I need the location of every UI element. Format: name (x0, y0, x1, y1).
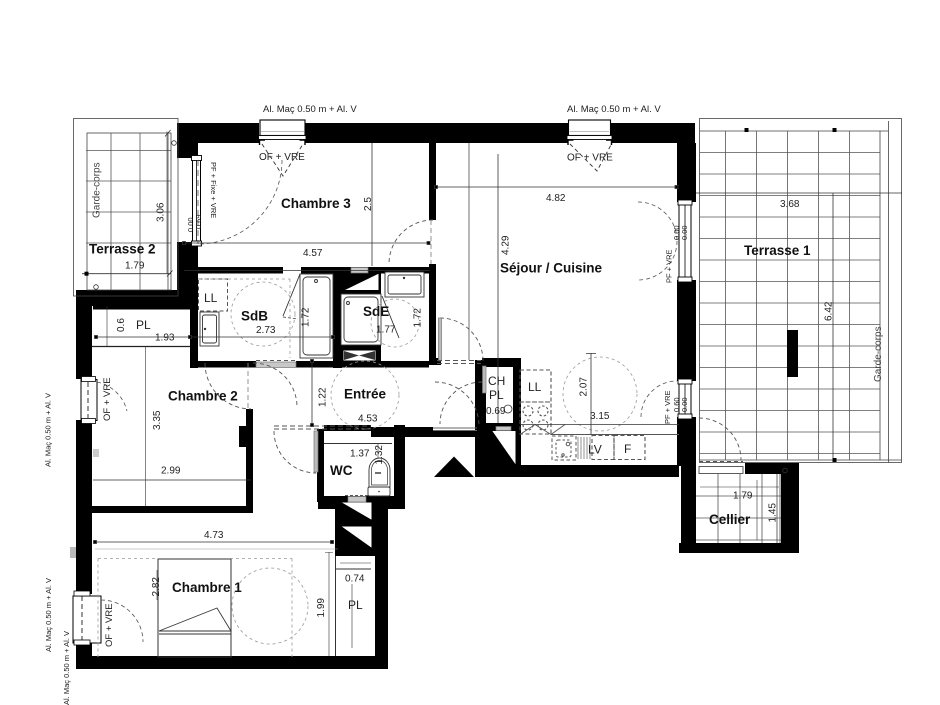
svg-text:Al. Maç 0.50 m + Al. V: Al. Maç 0.50 m + Al. V (567, 104, 661, 115)
svg-text:0.69: 0.69 (194, 214, 203, 229)
svg-text:OF + VRE: OF + VRE (567, 153, 613, 164)
svg-text:Garde-corps: Garde-corps (873, 326, 884, 382)
svg-text:LV: LV (588, 443, 602, 457)
svg-text:4.29: 4.29 (501, 235, 512, 255)
svg-text:Séjour / Cuisine: Séjour / Cuisine (500, 261, 603, 276)
svg-text:Garde-corps: Garde-corps (92, 162, 103, 218)
svg-text:Chambre 1: Chambre 1 (172, 580, 242, 595)
svg-text:Entrée: Entrée (344, 387, 387, 402)
svg-text:LL: LL (528, 380, 542, 394)
svg-text:1.79: 1.79 (733, 491, 753, 502)
svg-text:1.37: 1.37 (350, 449, 370, 460)
svg-text:1.45: 1.45 (768, 503, 779, 523)
svg-text:F: F (624, 442, 631, 456)
svg-text:0.00: 0.00 (680, 225, 689, 240)
svg-text:1.93: 1.93 (155, 333, 175, 344)
svg-text:2.73: 2.73 (256, 325, 276, 336)
svg-text:1.72: 1.72 (301, 307, 312, 327)
svg-text:4.82: 4.82 (546, 193, 566, 204)
svg-text:Al. Maç 0.50 m + Al. V: Al. Maç 0.50 m + Al. V (263, 104, 357, 115)
svg-text:Chambre 2: Chambre 2 (168, 389, 238, 404)
svg-text:PF + VRE: PF + VRE (665, 249, 674, 283)
svg-text:1.79: 1.79 (125, 261, 145, 272)
svg-text:3.06: 3.06 (156, 202, 167, 222)
svg-text:OF + VRE: OF + VRE (102, 377, 113, 421)
svg-text:0.6: 0.6 (116, 318, 127, 332)
svg-text:0.74: 0.74 (345, 574, 365, 585)
svg-text:4.53: 4.53 (358, 414, 378, 425)
svg-text:1.22: 1.22 (318, 387, 329, 407)
svg-text:1.77: 1.77 (376, 325, 396, 336)
svg-text:WC: WC (330, 463, 353, 478)
svg-text:SdB: SdB (241, 309, 268, 324)
svg-text:0.00: 0.00 (680, 397, 689, 412)
svg-text:OF + VRE: OF + VRE (259, 152, 305, 163)
svg-text:2.99: 2.99 (161, 466, 181, 477)
svg-text:PL: PL (348, 598, 363, 612)
svg-text:OF + VRE: OF + VRE (104, 603, 115, 647)
svg-text:SdE: SdE (363, 304, 389, 319)
svg-text:3.68: 3.68 (780, 199, 800, 210)
svg-text:Al. Maç 0.50 m + Al. V: Al. Maç 0.50 m + Al. V (62, 631, 71, 705)
svg-text:Chambre 3: Chambre 3 (281, 196, 351, 211)
svg-text:Cellier: Cellier (709, 512, 751, 527)
svg-text:1.99: 1.99 (316, 598, 327, 618)
svg-text:1.72: 1.72 (413, 308, 424, 328)
svg-text:0.69: 0.69 (486, 406, 506, 417)
svg-text:PF + VRE: PF + VRE (663, 390, 672, 424)
svg-text:2.82: 2.82 (151, 577, 162, 597)
svg-text:Terrasse 1: Terrasse 1 (744, 243, 811, 258)
svg-text:6.42: 6.42 (824, 301, 835, 321)
svg-text:4.57: 4.57 (303, 248, 323, 259)
svg-text:CH: CH (488, 374, 505, 388)
svg-text:Al. Maç 0.50 m + Al. V: Al. Maç 0.50 m + Al. V (44, 578, 53, 652)
svg-text:2.07: 2.07 (579, 377, 590, 397)
svg-text:4.73: 4.73 (204, 530, 224, 541)
svg-text:PL: PL (136, 318, 151, 332)
svg-text:2.5: 2.5 (363, 197, 374, 211)
svg-text:1.32: 1.32 (374, 445, 385, 465)
svg-text:Terrasse 2: Terrasse 2 (89, 242, 156, 257)
svg-text:3.35: 3.35 (152, 410, 163, 430)
svg-text:PF + Fixe + VRE: PF + Fixe + VRE (209, 162, 218, 218)
svg-text:PL: PL (489, 388, 504, 402)
svg-text:LL: LL (204, 291, 218, 305)
svg-text:Al. Maç 0.50 m + Al. V: Al. Maç 0.50 m + Al. V (44, 393, 53, 467)
svg-text:3.15: 3.15 (590, 411, 610, 422)
